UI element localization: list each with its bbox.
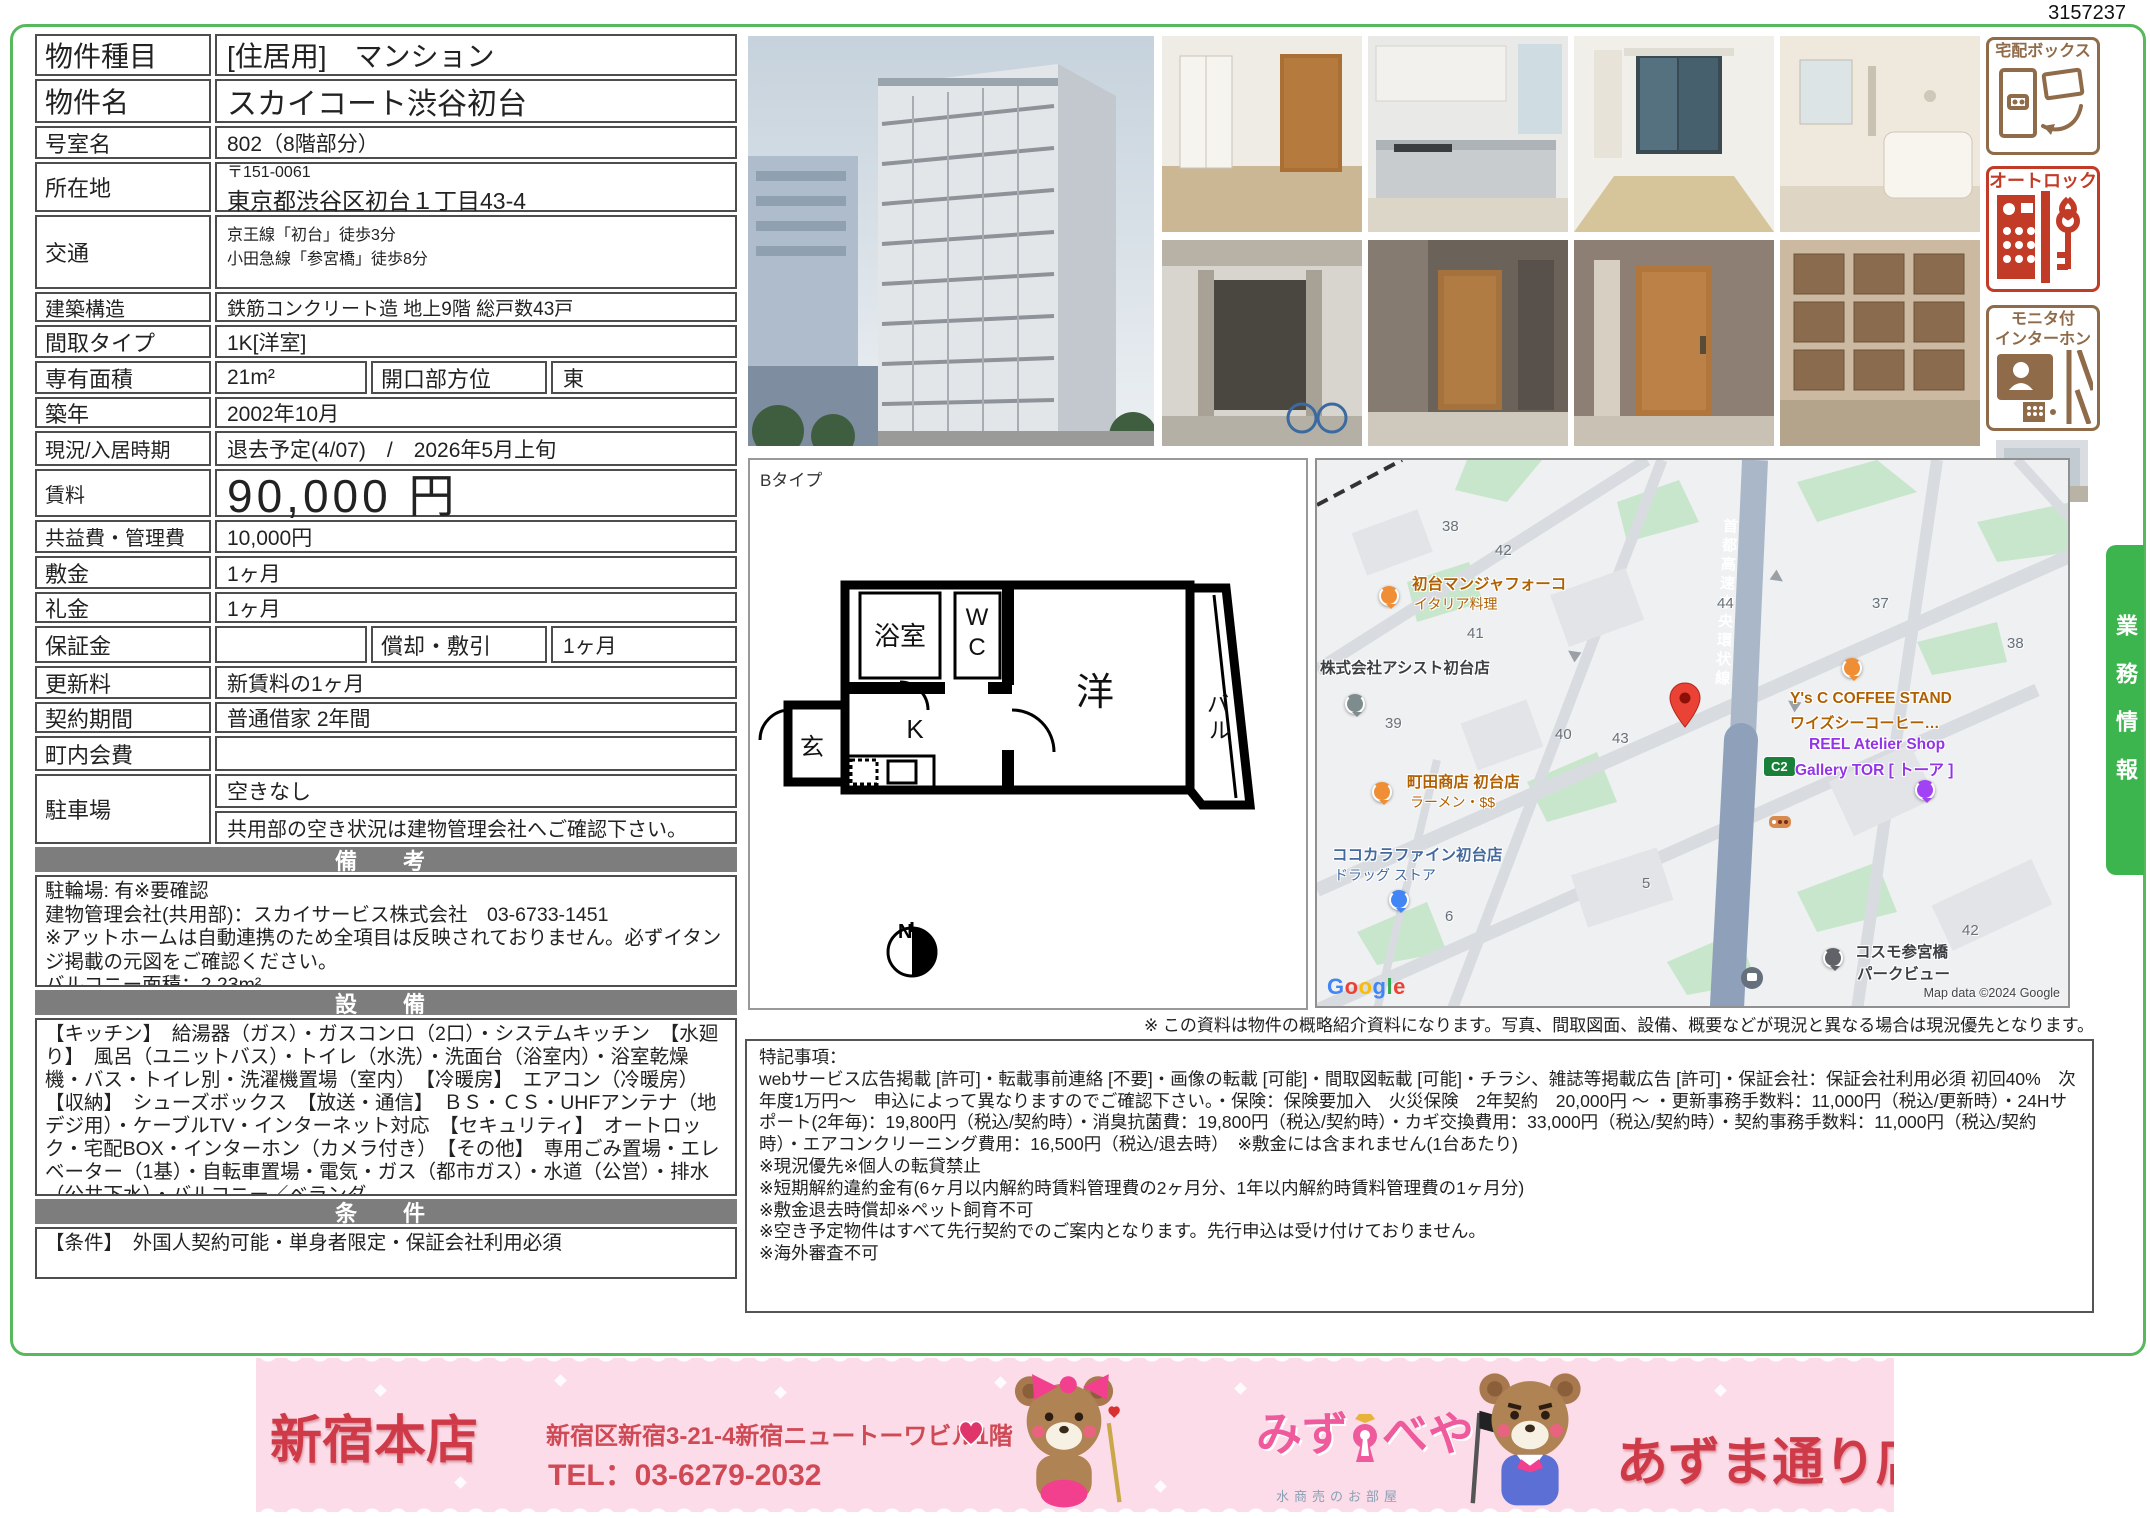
shop1-tel: TEL：03-6279-2032	[548, 1450, 822, 1494]
value-rent: 90,000 円	[215, 469, 737, 517]
access-line-2: 小田急線「参宮橋」徒歩8分	[227, 245, 428, 269]
photo-entrance-exterior	[1162, 240, 1362, 446]
value-access: 京王線「初台」徒歩3分 小田急線「参宮橋」徒歩8分	[215, 215, 737, 289]
value-parking-status: 空きなし	[215, 774, 737, 808]
remarks-line: 駐輪場: 有※要確認	[45, 880, 727, 904]
block-number: 40	[1555, 726, 1572, 743]
label-access: 交通	[35, 215, 211, 289]
value-contract: 普通借家 2年間	[215, 702, 737, 733]
shop1-name: 新宿本店	[270, 1398, 478, 1473]
label-deposit: 敷金	[35, 556, 211, 589]
row-access: 交通 京王線「初台」徒歩3分 小田急線「参宮橋」徒歩8分	[35, 215, 737, 289]
row-renewal: 更新料 新賃料の1ヶ月	[35, 666, 737, 699]
poi-pin-coffee	[1842, 658, 1862, 678]
value-built: 2002年10月	[215, 397, 737, 428]
label-renewal: 更新料	[35, 666, 211, 699]
remarks-header: 備 考	[35, 847, 737, 872]
row-contract: 契約期間 普通借家 2年間	[35, 702, 737, 733]
badge-monitor-intercom-label-2: インターホン	[1995, 330, 2091, 350]
row-area: 専有面積 21m² 開口部方位 東	[35, 361, 737, 394]
value-facing: 東	[551, 361, 737, 394]
value-property-type: [住居用] マンション	[215, 34, 737, 76]
poi-restaurant-name: 初台マンジャフォーコ	[1412, 572, 1566, 594]
value-structure: 鉄筋コンクリート造 地上9階 総戸数43戸	[215, 292, 737, 322]
value-association	[215, 736, 737, 771]
photo-building-exterior	[748, 36, 1154, 446]
shop1-address: 新宿区新宿3-21-4新宿ニュートーワビル1階	[546, 1416, 1013, 1451]
label-layout: 間取タイプ	[35, 325, 211, 358]
value-key-money: 1ヶ月	[215, 592, 737, 623]
value-property-name: スカイコート渋谷初台	[215, 79, 737, 123]
block-number: 43	[1612, 730, 1629, 747]
logo-tagline: 水商売のお部屋	[1276, 1486, 1402, 1505]
photo-unit-door	[1574, 240, 1774, 446]
location-map: 首都高速中央環状線 C2 38 42 44 37 41 38 39 40 43 …	[1315, 458, 2070, 1008]
badge-delivery-box: 宅配ボックス	[1986, 37, 2100, 155]
label-parking: 駐車場	[35, 774, 211, 844]
row-deposit: 敷金 1ヶ月	[35, 556, 737, 589]
badge-auto-lock: オートロック	[1986, 166, 2100, 292]
postal-code: 〒151-0061	[227, 158, 311, 182]
value-parking-note: 共用部の空き状況は建物管理会社へご確認下さい。	[215, 811, 737, 844]
label-facing: 開口部方位	[371, 361, 547, 394]
room-wc-label-w: W	[966, 604, 989, 631]
label-property-type: 物件種目	[35, 34, 211, 76]
poi-coffee-name: Y's C COFFEE STAND	[1790, 690, 1952, 708]
floorplan-drawing: 浴室 W C 玄 K 洋 バ ル N	[750, 460, 1306, 1008]
label-guarantee: 保証金	[35, 626, 211, 663]
block-number: 38	[2007, 635, 2024, 652]
conditions-header: 条 件	[35, 1199, 737, 1224]
row-parking: 駐車場 空きなし 共用部の空き状況は建物管理会社へご確認下さい。	[35, 774, 737, 844]
poi-pin-ramen	[1372, 782, 1392, 802]
google-logo: Google	[1327, 974, 1406, 1000]
remarks-line: 建物管理会社(共用部)：スカイサービス株式会社 03-6733-1451	[45, 904, 727, 928]
value-fee: 10,000円	[215, 520, 737, 553]
label-status: 現況/入居時期	[35, 431, 211, 466]
special-notes-panel: 特記事項： webサービス広告掲載 [許可]・転載事前連絡 [不要]・画像の転載…	[745, 1039, 2094, 1313]
value-area: 21m²	[215, 361, 367, 394]
logo-text-post: べや	[1382, 1398, 1474, 1464]
poi-drugstore-name: ココカラファイン初台店	[1332, 843, 1503, 865]
poi-cosmo-sub: パークビュー	[1857, 962, 1950, 984]
value-deposit: 1ヶ月	[215, 556, 737, 589]
row-property-type: 物件種目 [住居用] マンション	[35, 34, 737, 76]
floorplan-type-label: Bタイプ	[760, 466, 822, 491]
row-address: 所在地 〒151-0061 東京都渋谷区初台１丁目43-4	[35, 162, 737, 212]
badge-delivery-box-label: 宅配ボックス	[1995, 42, 2091, 62]
label-area: 専有面積	[35, 361, 211, 394]
row-key-money: 礼金 1ヶ月	[35, 592, 737, 623]
block-number: 41	[1467, 625, 1484, 642]
block-number: 39	[1385, 715, 1402, 732]
logo-text-pre: みず	[1256, 1398, 1348, 1464]
poi-pin-assist	[1345, 694, 1365, 714]
poi-pin-gallery	[1915, 780, 1935, 800]
label-structure: 建築構造	[35, 292, 211, 322]
tab-business-info-label: 業務情報	[2109, 614, 2141, 806]
poi-assist-name: 株式会社アシスト初台店	[1320, 656, 1490, 678]
row-association: 町内会費	[35, 736, 737, 771]
value-address: 〒151-0061 東京都渋谷区初台１丁目43-4	[215, 162, 737, 212]
photo-room-door	[1162, 36, 1362, 232]
row-guarantee: 保証金 償却・敷引 1ヶ月	[35, 626, 737, 663]
poi-restaurant-sub: イタリア料理	[1414, 594, 1497, 614]
map-copyright: Map data ©2024 Google	[1924, 986, 2060, 1000]
remarks-block: 駐輪場: 有※要確認 建物管理会社(共用部)：スカイサービス株式会社 03-67…	[35, 875, 737, 987]
special-notes-line: ※現況優先※個人の転貸禁止	[759, 1156, 2080, 1178]
route-badge-c2: C2	[1763, 756, 1796, 777]
property-table: 物件種目 [住居用] マンション 物件名 スカイコート渋谷初台 号室名 802（…	[35, 34, 737, 1282]
row-room: 号室名 802（8階部分）	[35, 126, 737, 159]
label-rent: 賃料	[35, 469, 211, 517]
badge-auto-lock-label: オートロック	[1989, 171, 2097, 191]
value-renewal: 新賃料の1ヶ月	[215, 666, 737, 699]
building-illustration	[748, 36, 1154, 446]
special-notes-line: ※海外審査不可	[759, 1243, 2080, 1265]
value-amortization: 1ヶ月	[551, 626, 737, 663]
block-number: 5	[1642, 875, 1650, 892]
property-sheet: 3157237 業務情報 物件種目 [住居用] マンション 物件名 スカイコート…	[0, 0, 2150, 1518]
heart-icon	[956, 1418, 986, 1448]
poi-pin-restaurant	[1379, 586, 1399, 606]
tab-business-info[interactable]: 業務情報	[2106, 545, 2144, 875]
poi-coffee-sub: ワイズシーコーヒー…	[1790, 712, 1940, 733]
room-kitchen-label: K	[906, 714, 924, 744]
photo-mailboxes	[1780, 240, 1980, 446]
conditions-block: 【条件】 外国人契約可能・単身者限定・保証会社利用必須	[35, 1227, 737, 1279]
floorplan-panel: Bタイプ	[748, 458, 1308, 1010]
row-rent: 賃料 90,000 円	[35, 469, 737, 517]
label-fee: 共益費・管理費	[35, 520, 211, 553]
poi-drugstore-sub: ドラッグ ストア	[1334, 865, 1436, 885]
photo-entrance-hall	[1368, 240, 1568, 446]
special-notes-line: ※短期解約違約金有(6ヶ月以内解約時賃料管理費の2ヶ月分、1年以内解約時賃料管理…	[759, 1178, 2080, 1200]
value-guarantee	[215, 626, 367, 663]
block-number: 44	[1717, 595, 1734, 612]
photo-room-window	[1574, 36, 1774, 232]
block-number: 42	[1495, 542, 1512, 559]
shop2-name: あずま通り店	[1616, 1420, 1894, 1495]
equipment-block: 【キッチン】 給湯器（ガス）・ガスコンロ（2口）・システムキッチン 【水廻り】 …	[35, 1018, 737, 1196]
room-balcony-label-1: バ	[1207, 692, 1229, 717]
row-structure: 建築構造 鉄筋コンクリート造 地上9階 総戸数43戸	[35, 292, 737, 322]
map-base	[1317, 460, 2070, 1008]
room-bath-label: 浴室	[874, 621, 926, 651]
shop-logo: みず べや	[1256, 1398, 1474, 1464]
row-layout: 間取タイプ 1K[洋室]	[35, 325, 737, 358]
monitor-intercom-icon	[1993, 350, 2093, 424]
value-room: 802（8階部分）	[215, 126, 737, 159]
badge-monitor-intercom-label-1: モニタ付	[1995, 310, 2091, 330]
photo-bathroom	[1780, 36, 1980, 232]
special-notes-title: 特記事項：	[759, 1047, 2080, 1069]
shop-banner: 新宿本店 新宿区新宿3-21-4新宿ニュートーワビル1階 TEL：03-6279…	[256, 1358, 1894, 1512]
remarks-line: バルコニー面積：2.23m²	[45, 974, 727, 987]
poi-pin-drugstore	[1389, 890, 1409, 910]
poi-gallery-sub: Gallery TOR [ トーア ]	[1795, 758, 1953, 780]
poi-gallery-name: REEL Atelier Shop	[1809, 736, 1945, 754]
label-contract: 契約期間	[35, 702, 211, 733]
compass-n: N	[898, 921, 912, 943]
poi-ramen-name: 町田商店 初台店	[1407, 770, 1520, 792]
label-amortization: 償却・敷引	[371, 626, 547, 663]
label-association: 町内会費	[35, 736, 211, 771]
row-property-name: 物件名 スカイコート渋谷初台	[35, 79, 737, 123]
compass-icon: N	[888, 921, 936, 976]
poi-pin-cosmo	[1823, 948, 1843, 968]
room-balcony-label-2: ル	[1209, 718, 1231, 743]
photo-kitchen	[1368, 36, 1568, 232]
label-room: 号室名	[35, 126, 211, 159]
block-number: 38	[1442, 518, 1459, 535]
address-text: 東京都渋谷区初台１丁目43-4	[227, 182, 526, 216]
label-built: 築年	[35, 397, 211, 428]
block-number: 37	[1872, 595, 1889, 612]
special-notes-line: ※空き予定物件はすべて先行契約でのご案内となります。先行申込は受け付けておりませ…	[759, 1221, 2080, 1243]
label-address: 所在地	[35, 162, 211, 212]
room-entrance-label: 玄	[800, 734, 824, 761]
room-wc-label-c: C	[968, 634, 985, 661]
label-key-money: 礼金	[35, 592, 211, 623]
row-built: 築年 2002年10月	[35, 397, 737, 428]
keyhole-icon	[1348, 1412, 1382, 1464]
badge-monitor-intercom: モニタ付 インターホン	[1986, 305, 2100, 431]
room-western-label: 洋	[1076, 672, 1114, 714]
delivery-box-icon	[1993, 62, 2093, 148]
special-notes-body: webサービス広告掲載 [許可]・転載事前連絡 [不要]・画像の転載 [可能]・…	[759, 1069, 2080, 1156]
label-property-name: 物件名	[35, 79, 211, 123]
access-line-1: 京王線「初台」徒歩3分	[227, 221, 396, 245]
value-layout: 1K[洋室]	[215, 325, 737, 358]
map-disclaimer-note: ※ この資料は物件の概略紹介資料になります。写真、間取図面、設備、概要などが現況…	[1144, 1011, 2094, 1036]
bear-boy-mascot	[1462, 1358, 1598, 1512]
property-location-pin	[1669, 682, 1701, 728]
document-number: 3157237	[2048, 2, 2126, 25]
special-notes-line: ※敷金退去時償却※ペット飼育不可	[759, 1200, 2080, 1222]
auto-lock-icon	[1993, 191, 2093, 283]
remarks-line: ※アットホームは自動連携のため全項目は反映されておりません。必ずイタンジ掲載の元…	[45, 927, 727, 974]
block-number: 42	[1962, 922, 1979, 939]
bear-girl-mascot	[1000, 1360, 1128, 1512]
poi-ramen-sub: ラーメン・$$	[1410, 792, 1495, 812]
poi-cosmo-name: コスモ参宮橋	[1855, 940, 1948, 962]
block-number: 6	[1445, 908, 1453, 925]
row-fee: 共益費・管理費 10,000円	[35, 520, 737, 553]
equipment-header: 設 備	[35, 990, 737, 1015]
